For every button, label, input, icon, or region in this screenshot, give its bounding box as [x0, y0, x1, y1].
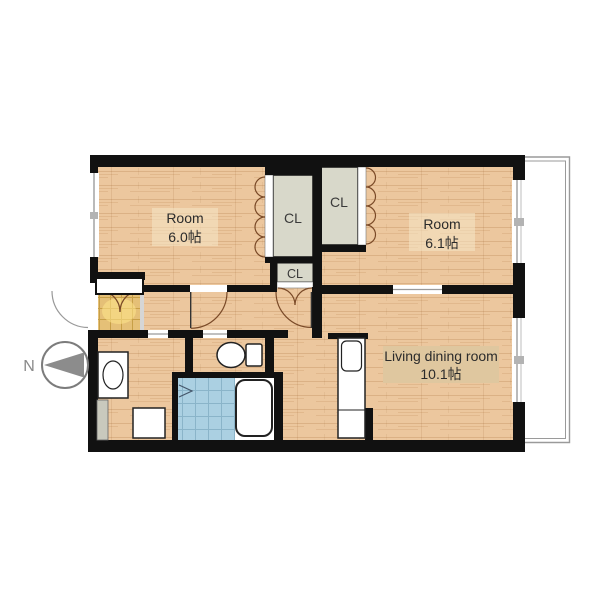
wall-hall-south-c: [227, 330, 288, 338]
wall-toilet-east: [265, 330, 274, 378]
living-name: Living dining room: [384, 348, 498, 364]
wall-hall-north-a: [142, 285, 190, 292]
wall-hall-south-a: [88, 330, 148, 338]
wall-bath-east: [274, 372, 283, 440]
room1-area: 6.0帖: [168, 229, 201, 245]
wall-closet-divider: [313, 167, 322, 287]
room2-name: Room: [423, 216, 460, 232]
floor-plan-page: N Room 6.0帖 Room 6.1帖 Living dining room…: [0, 0, 600, 600]
wall-hall-east: [312, 287, 322, 338]
wall-north: [90, 155, 525, 167]
entrance-step: [140, 294, 144, 330]
wall-closet-right-bottom: [318, 245, 366, 252]
wall-west-upper: [90, 155, 98, 173]
closet-small-door-strip: [277, 282, 313, 288]
wall-closet-small-west: [270, 258, 277, 292]
wall-bath-west: [172, 372, 178, 440]
balcony: [525, 157, 570, 443]
wall-bath-north: [172, 372, 274, 378]
closet-small-label: CL: [287, 267, 303, 281]
toilet-bowl: [217, 343, 245, 368]
wall-east-mid: [513, 263, 525, 318]
closet-left-door-strip: [265, 175, 273, 257]
kitchen-sink: [342, 341, 362, 371]
closet-right-label: CL: [330, 194, 348, 210]
wall-toilet-west: [185, 338, 193, 372]
pipe-space: [97, 400, 108, 440]
wall-west-lower: [88, 330, 98, 452]
wall-east-lower: [513, 402, 525, 452]
living-area: 10.1帖: [420, 366, 461, 382]
wall-closet-top: [265, 167, 320, 175]
doorway-room1: [190, 285, 227, 292]
washer-pan: [133, 408, 165, 438]
wall-south: [90, 440, 525, 452]
bathroom-tile-floor: [178, 378, 235, 440]
bathtub: [236, 380, 272, 436]
wall-kitchen-stub: [365, 408, 373, 440]
entrance-door-arc: [52, 291, 88, 328]
wall-east-upper: [513, 155, 525, 180]
washbasin-bowl: [103, 361, 123, 389]
shoe-cabinet: [96, 278, 143, 294]
toilet-tank: [246, 344, 262, 366]
entrance-tile-highlight: [102, 298, 136, 324]
wall-hall-north-b: [227, 285, 277, 292]
wall-hall-south-b: [168, 330, 203, 338]
compass: N: [23, 342, 88, 388]
closet-left-label: CL: [284, 210, 302, 226]
compass-north-letter: N: [23, 358, 35, 375]
room2-area: 6.1帖: [425, 235, 458, 251]
room1-name: Room: [166, 210, 203, 226]
closet-right-door-strip: [358, 167, 366, 245]
floor-plan-canvas: N Room 6.0帖 Room 6.1帖 Living dining room…: [0, 0, 600, 600]
